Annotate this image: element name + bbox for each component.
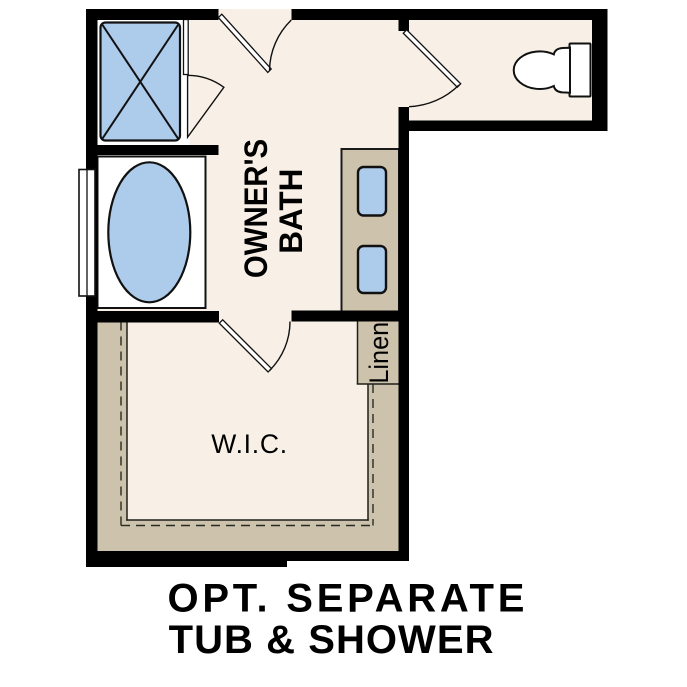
svg-text:BATH: BATH	[273, 169, 310, 254]
svg-text:OWNER'S: OWNER'S	[237, 139, 274, 278]
svg-text:Linen: Linen	[363, 322, 394, 384]
svg-text:OPT. SEPARATE: OPT. SEPARATE	[168, 577, 529, 621]
svg-text:TUB & SHOWER: TUB & SHOWER	[169, 618, 495, 662]
svg-text:W.I.C.: W.I.C.	[211, 429, 288, 459]
